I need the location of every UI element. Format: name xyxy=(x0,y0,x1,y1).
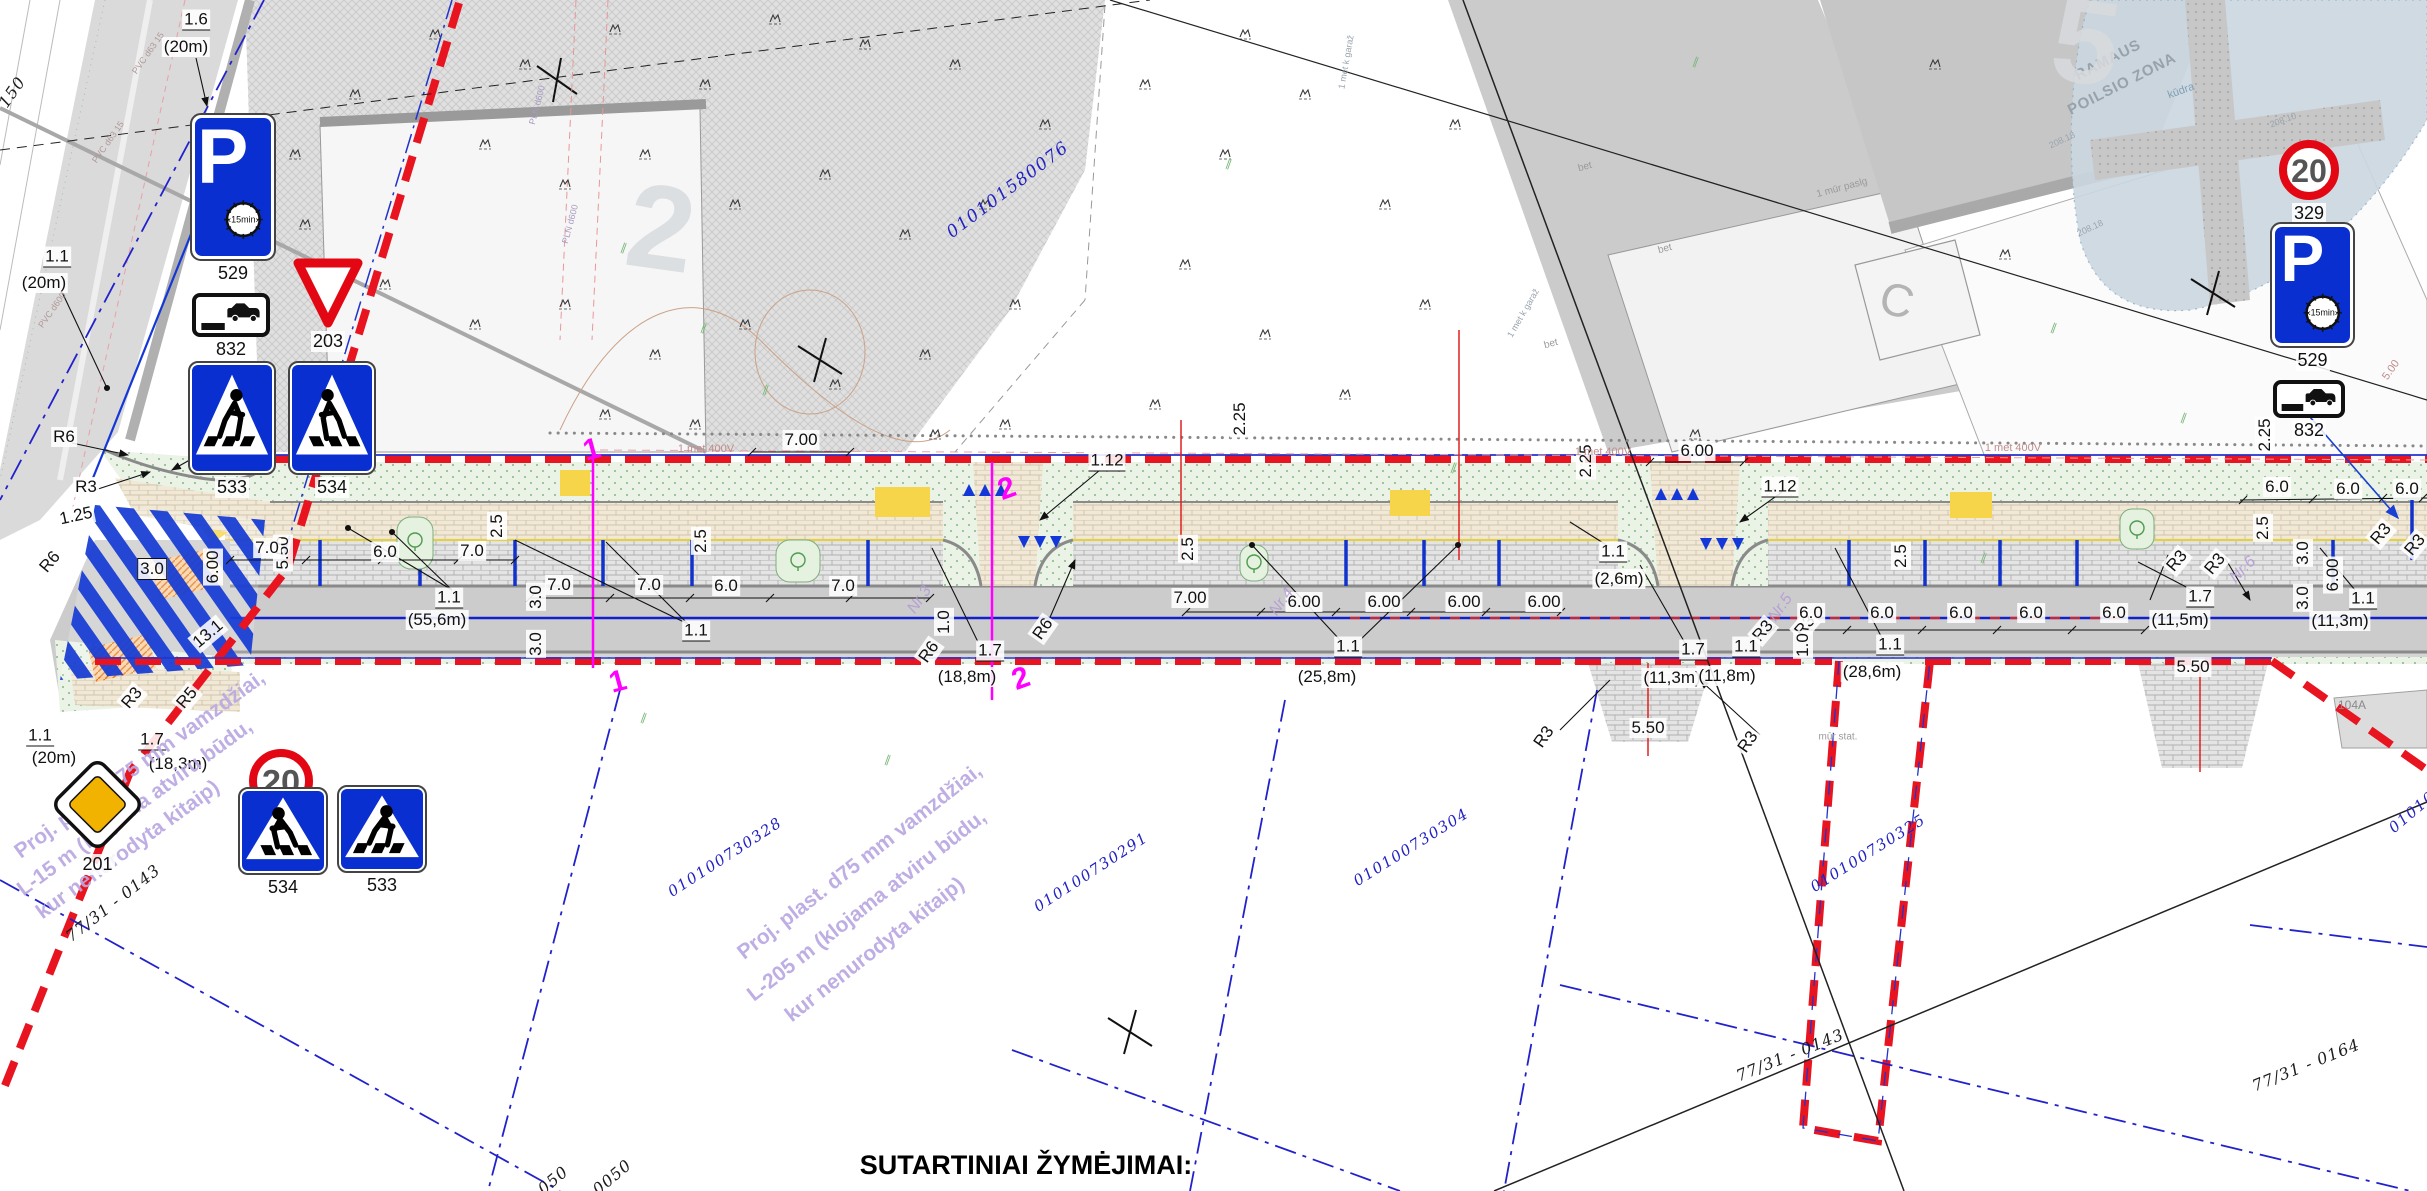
yield-sign-icon xyxy=(292,255,364,329)
bush-icon xyxy=(1149,400,1161,409)
traffic-sign-529: P‹15min›529 xyxy=(2270,222,2355,348)
dimension-label: 1.1 xyxy=(43,247,71,268)
bush-icon xyxy=(1299,90,1311,99)
dimension-label: (2,6m) xyxy=(1592,569,1645,589)
dimension-label: 1.7 xyxy=(2186,587,2214,608)
traffic-sign-329: 20329 xyxy=(2278,139,2340,201)
plan-linework: ∥∥∥∥∥∥∥∥∥∥∥∥ xyxy=(0,0,2427,1191)
priority-road-sign-icon xyxy=(50,757,145,852)
dimension-label: 7.0 xyxy=(458,541,486,561)
dimension-label: 2.5 xyxy=(2253,514,2273,542)
building-label: mūr stat. xyxy=(1819,732,1858,743)
dimension-label: 6.00 xyxy=(1525,592,1562,612)
dimension-label: 6.00 xyxy=(1445,592,1482,612)
dimension-label: 5.50 xyxy=(1629,718,1666,738)
grass-mark-icon: ∥ xyxy=(883,754,892,767)
bush-icon xyxy=(999,420,1011,429)
crosswalk-sign-icon xyxy=(188,361,276,475)
dimension-label: (55,6m) xyxy=(406,610,469,630)
sign-code-label: 534 xyxy=(266,877,300,898)
legend-title: SUTARTINIAI ŽYMĖJIMAI: xyxy=(836,1150,1216,1181)
dimension-label: 7.0 xyxy=(545,575,573,595)
sign-code-label: 832 xyxy=(214,339,248,360)
dimension-label: 1.1 xyxy=(1334,637,1362,658)
dimension-label: 6.0 xyxy=(2334,479,2362,499)
traffic-sign-533: 533 xyxy=(337,785,427,873)
bush-icon xyxy=(1379,200,1391,209)
bush-icon xyxy=(1139,80,1151,89)
dimension-label: 6.00 xyxy=(1678,441,1715,461)
bush-icon xyxy=(1419,300,1431,309)
dimension-label: (11,5m) xyxy=(2149,610,2210,630)
car-plate-icon xyxy=(2273,380,2345,418)
dimension-label: 6.0 xyxy=(1868,603,1896,623)
svg-text:‹15min›: ‹15min› xyxy=(2308,308,2338,318)
traffic-sign-534: 534 xyxy=(238,787,328,875)
bush-icon xyxy=(1259,330,1271,339)
dimension-label: (28,6m) xyxy=(1841,662,1904,682)
dimension-label: (20m) xyxy=(20,273,68,293)
car-plate-icon xyxy=(192,293,270,337)
dimension-label: 6.0 xyxy=(712,576,740,596)
dimension-label: 6.00 xyxy=(2323,556,2343,593)
traffic-sign-832: 832 xyxy=(2273,380,2345,418)
sign-code-label: 533 xyxy=(215,477,249,498)
dimension-label: 1.6 xyxy=(182,10,210,31)
sign-code-label: 832 xyxy=(2292,420,2326,441)
dimension-label: 6.0 xyxy=(2100,603,2128,623)
dimension-label: 1.1 xyxy=(26,726,54,747)
dimension-label: 7.00 xyxy=(782,430,819,450)
dimension-label: 6.00 xyxy=(203,548,223,585)
dimension-label: 6.0 xyxy=(371,542,399,562)
traffic-sign-534: 534 xyxy=(288,361,376,475)
dimension-label: 3.0 xyxy=(137,558,167,580)
dimension-label: 5.50 xyxy=(2174,657,2211,677)
dimension-label: 2.5 xyxy=(691,527,711,555)
dimension-label: R6 xyxy=(51,427,77,447)
sign-code-label: 533 xyxy=(365,875,399,896)
sign-code-label: 529 xyxy=(216,263,250,284)
dimension-label: 1.1 xyxy=(2349,589,2377,610)
dimension-label: 6.0 xyxy=(2263,477,2291,497)
dimension-label: 1.0 xyxy=(934,608,954,636)
site-plan: ∥∥∥∥∥∥∥∥∥∥∥∥ SUTARTINIAI ŽYMĖJIMAI: 1.6(… xyxy=(0,0,2427,1191)
dimension-label: 1.12 xyxy=(1761,477,1798,498)
dimension-label: (18,8m) xyxy=(936,667,999,687)
dimension-label: (11,3m) xyxy=(2309,611,2370,631)
sign-code-label: 329 xyxy=(2292,203,2326,224)
crosswalk-stripes xyxy=(60,505,265,680)
utility-label: 1 met 400V xyxy=(1575,446,1631,458)
parking-sign-icon: P‹15min› xyxy=(190,113,276,261)
dimension-label: 1.1 xyxy=(1599,542,1627,563)
dimension-label: 1.1 xyxy=(1732,637,1760,658)
building-label: 104A xyxy=(2338,698,2366,712)
dimension-label: (25,8m) xyxy=(1296,667,1359,687)
grass-mark-icon: ∥ xyxy=(639,712,648,725)
dimension-label: 2.25 xyxy=(2255,416,2275,453)
dimension-label: 1.1 xyxy=(682,621,710,642)
sign-code-label: 203 xyxy=(311,331,345,352)
dimension-label: (11,8m) xyxy=(1696,666,1757,686)
dimension-label: 6.00 xyxy=(1365,592,1402,612)
traffic-sign-203: 203 xyxy=(292,255,364,329)
dimension-label: R3 xyxy=(73,477,99,497)
dimension-label: (20m) xyxy=(162,37,210,57)
svg-text:P: P xyxy=(2280,222,2324,295)
bush-icon xyxy=(1239,30,1251,39)
dimension-label: 3.0 xyxy=(526,630,546,658)
bush-icon xyxy=(929,430,941,439)
dimension-label: 1.1 xyxy=(1876,635,1904,656)
dimension-label: 1.0 xyxy=(1793,631,1813,659)
dimension-label: 2.5 xyxy=(1891,542,1911,570)
dimension-label: 1.12 xyxy=(1088,451,1125,472)
bush-icon xyxy=(1449,120,1461,129)
dimension-label: 3.0 xyxy=(2293,584,2313,612)
dimension-label: 7.0 xyxy=(253,538,281,558)
dimension-label: 1.1 xyxy=(435,588,463,609)
dimension-label: 1.7 xyxy=(1679,640,1707,661)
dimension-label: 6.0 xyxy=(1947,603,1975,623)
crosswalk-sign-icon xyxy=(337,785,427,873)
dimension-label: 1.7 xyxy=(976,641,1004,662)
grass-mark-icon: ∥ xyxy=(1224,158,1233,171)
dimension-label: 6.0 xyxy=(2017,603,2045,623)
svg-text:20: 20 xyxy=(2291,153,2327,189)
traffic-sign-832: 832 xyxy=(192,293,270,337)
sign-code-label: 201 xyxy=(80,854,114,875)
crosswalk-sign-icon xyxy=(288,361,376,475)
parking-sign-icon: P‹15min› xyxy=(2270,222,2355,348)
svg-text:‹15min›: ‹15min› xyxy=(228,215,258,225)
svg-text:P: P xyxy=(197,114,248,200)
dimension-label: 3.0 xyxy=(526,583,546,611)
crosswalk-sign-icon xyxy=(238,787,328,875)
traffic-sign-529: P‹15min›529 xyxy=(190,113,276,261)
dimension-label: 6.0 xyxy=(2393,479,2421,499)
dimension-label: (11,3m) xyxy=(1641,668,1702,688)
traffic-sign-201: 201 xyxy=(50,757,145,852)
dimension-label: 7.0 xyxy=(635,575,663,595)
dimension-label: 7.0 xyxy=(829,576,857,596)
dimension-label: 2.25 xyxy=(1230,400,1250,437)
utility-label: 1 met 400V xyxy=(678,443,734,455)
bush-icon xyxy=(1339,390,1351,399)
dimension-label: 7.00 xyxy=(1171,588,1208,608)
sign-code-label: 529 xyxy=(2295,350,2329,371)
dimension-label: 2.5 xyxy=(487,512,507,540)
sign-code-label: 534 xyxy=(315,477,349,498)
traffic-sign-533: 533 xyxy=(188,361,276,475)
utility-label: 1 met 400V xyxy=(1985,442,2041,454)
bush-icon xyxy=(1179,260,1191,269)
dimension-label: 3.0 xyxy=(2293,539,2313,567)
speed-limit-sign-icon: 20 xyxy=(2278,139,2340,201)
dimension-label: 6.0 xyxy=(1797,603,1825,623)
dimension-label: 2.5 xyxy=(1178,535,1198,563)
